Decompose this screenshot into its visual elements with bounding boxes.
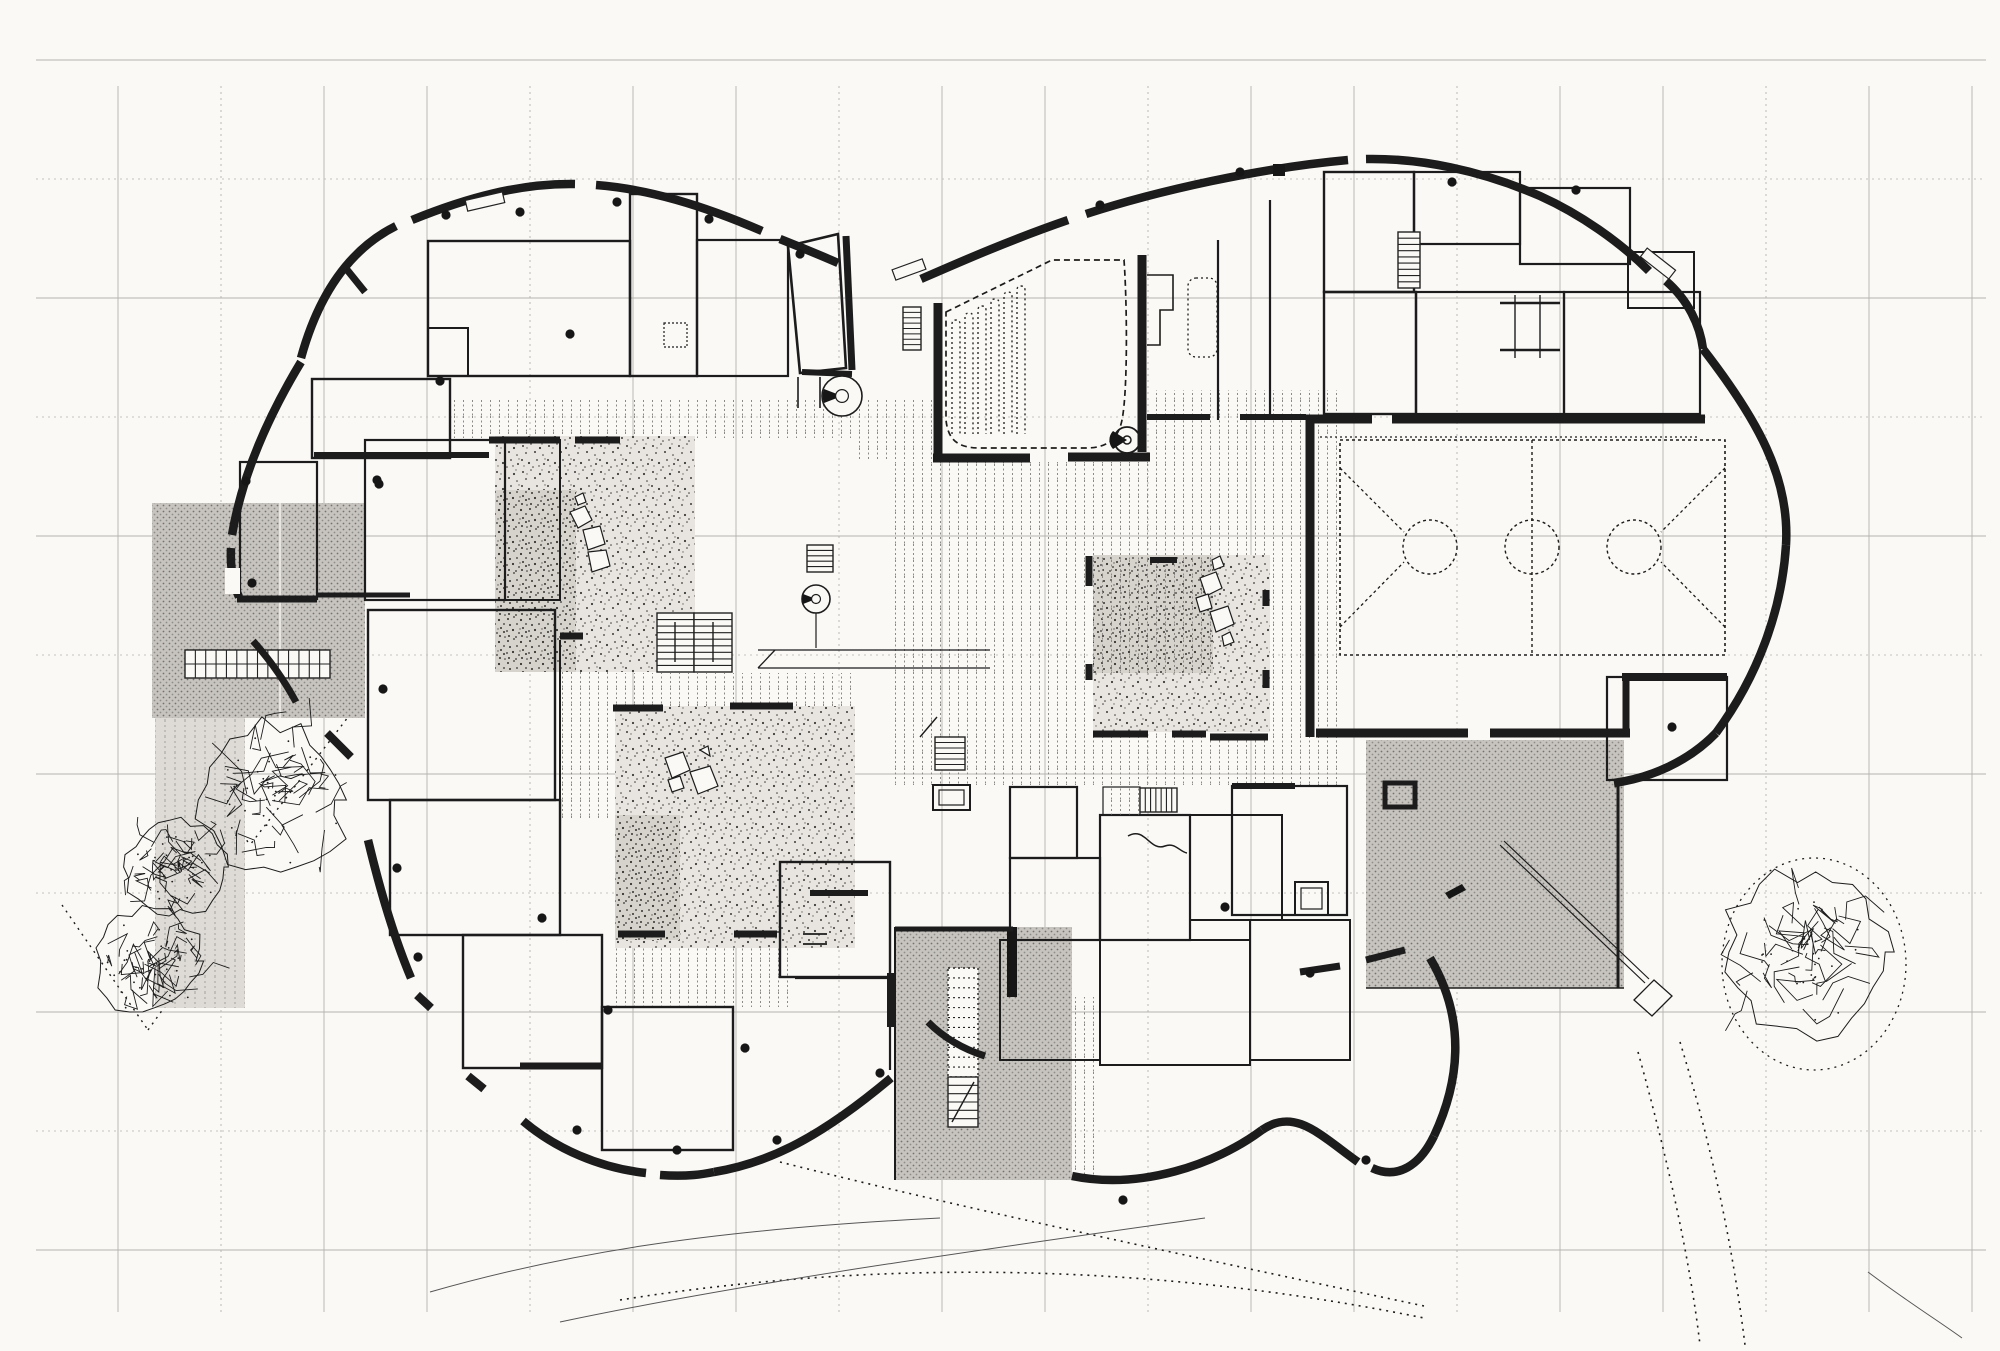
tree-dot — [1802, 982, 1804, 984]
column-dot — [378, 684, 387, 693]
tree-dot — [166, 836, 168, 838]
tree-dot — [107, 962, 109, 964]
tree-dot — [1818, 958, 1820, 960]
stair-outline — [948, 968, 978, 1077]
column-dot — [565, 329, 574, 338]
tree-dot — [244, 810, 246, 812]
tree-dot — [158, 898, 160, 900]
stair-run — [903, 307, 921, 350]
stair-run — [185, 650, 330, 678]
tree-dot — [274, 800, 276, 802]
tree-dot — [289, 862, 291, 864]
tree-dot — [192, 855, 194, 857]
tree-dot — [186, 862, 188, 864]
tree-dot — [175, 836, 177, 838]
tree-dot — [175, 869, 177, 871]
drawing-sheet — [0, 0, 2000, 1351]
tree-dot — [133, 981, 135, 983]
tree-dot — [263, 815, 265, 817]
column-dot — [603, 1005, 612, 1014]
tree-dot — [168, 947, 170, 949]
column-dot — [875, 1068, 884, 1077]
tree-dot — [1837, 1012, 1839, 1014]
stair-outline — [807, 545, 833, 572]
tree-dot — [176, 970, 178, 972]
column-dot — [392, 863, 401, 872]
tree-dot — [270, 811, 272, 813]
spiral-hub — [812, 595, 821, 604]
stair-run-dotted — [948, 968, 978, 1077]
column-dot — [612, 197, 621, 206]
tree-dot — [158, 929, 160, 931]
tree-dot — [1807, 943, 1809, 945]
tree-dot — [1814, 1019, 1816, 1021]
tree-dot — [335, 823, 337, 825]
tree-dot — [262, 778, 264, 780]
deck-stripes — [610, 940, 790, 1007]
column-dot — [435, 376, 444, 385]
tree-dot — [1855, 949, 1857, 951]
column-dot — [1095, 200, 1104, 209]
tree-dot — [288, 740, 290, 742]
tree-dot — [1815, 940, 1817, 942]
tree-dot — [137, 853, 139, 855]
tree-dot — [268, 787, 270, 789]
tree-dot — [1786, 960, 1788, 962]
tree-dot — [162, 843, 164, 845]
tree-dot — [156, 963, 158, 965]
spiral-stair — [822, 376, 862, 416]
tree-dot — [178, 863, 180, 865]
tree-dot — [157, 891, 159, 893]
tree-dot — [123, 924, 125, 926]
tree-dot — [1813, 901, 1815, 903]
tree-dot — [237, 760, 239, 762]
deck-stripes — [890, 555, 1093, 732]
column-dot — [1361, 1155, 1370, 1164]
tree-dot — [1857, 929, 1859, 931]
tree-dot — [1814, 977, 1816, 979]
deck-stripes — [890, 462, 1345, 555]
column-dot — [1235, 167, 1244, 176]
courtyard-gravel-dense — [495, 490, 576, 672]
deck-stripes — [1150, 390, 1345, 462]
tree-dot — [229, 804, 231, 806]
tree-dot — [169, 995, 171, 997]
tree-dot — [231, 827, 233, 829]
tree-dot — [166, 854, 168, 856]
column-dot — [247, 578, 256, 587]
deck-stripes — [852, 408, 933, 460]
column-dot — [413, 952, 422, 961]
tree-dot — [1804, 938, 1806, 940]
column-dot — [1220, 902, 1229, 911]
column-dot — [795, 249, 804, 258]
wall-chunk — [802, 372, 852, 374]
tree-dot — [1761, 954, 1763, 956]
stair-run — [935, 737, 965, 770]
tree-dot — [266, 824, 268, 826]
column-dot — [772, 1135, 781, 1144]
tree-dot — [192, 867, 194, 869]
tree-dot — [254, 737, 256, 739]
column-dot — [1447, 177, 1456, 186]
tree-dot — [191, 938, 193, 940]
tree-dot — [1761, 961, 1763, 963]
column-dot — [1118, 1195, 1127, 1204]
column-dot — [1305, 968, 1314, 977]
tree-dot — [1814, 964, 1816, 966]
tree-dot — [188, 857, 190, 859]
tree-dot — [268, 761, 270, 763]
tree-dot — [1763, 919, 1765, 921]
tree-dot — [163, 875, 165, 877]
floor-plan-canvas — [0, 0, 2000, 1351]
tree-dot — [186, 897, 188, 899]
tree-dot — [227, 769, 229, 771]
courtyard-gravel-dense — [615, 815, 680, 940]
tree-dot — [209, 855, 211, 857]
wall-bar — [1007, 927, 1017, 997]
tree-dot — [1810, 974, 1812, 976]
tree-dot — [175, 867, 177, 869]
tree-dot — [1812, 978, 1814, 980]
deck-stripes — [1072, 997, 1100, 1180]
column-dot — [1571, 185, 1580, 194]
tree-dot — [166, 968, 168, 970]
tree-dot — [124, 959, 126, 961]
column-dot — [704, 214, 713, 223]
tree-dot — [266, 799, 268, 801]
tree-dot — [267, 782, 269, 784]
tree-dot — [275, 791, 277, 793]
tree-dot — [119, 971, 121, 973]
tree-dot — [210, 892, 212, 894]
tree-dot — [1792, 950, 1794, 952]
tree-dot — [274, 795, 276, 797]
column-dot — [372, 475, 381, 484]
stair-run — [807, 545, 833, 572]
tree-dot — [126, 959, 128, 961]
tree-dot — [141, 968, 143, 970]
stair-run — [1398, 232, 1420, 288]
column-square — [1273, 164, 1285, 176]
tree-dot — [187, 997, 189, 999]
tree-dot — [257, 771, 259, 773]
tree-dot — [170, 869, 172, 871]
tree-dot — [184, 841, 186, 843]
tree-dot — [192, 873, 194, 875]
tree-dot — [1831, 965, 1833, 967]
spiral-hub — [836, 390, 849, 403]
tree-dot — [148, 959, 150, 961]
tree-dot — [135, 967, 137, 969]
tree-dot — [227, 800, 229, 802]
column-dot — [241, 476, 250, 485]
tree-dot — [171, 881, 173, 883]
column-dot — [572, 1125, 581, 1134]
terrace-hatched-west — [152, 503, 365, 718]
tree-dot — [177, 957, 179, 959]
tree-dot — [160, 945, 162, 947]
tree-dot — [125, 1007, 127, 1009]
tree-dot — [1796, 983, 1798, 985]
tree-dot — [335, 774, 337, 776]
tree-dot — [178, 869, 180, 871]
tree-dot — [309, 756, 311, 758]
vestibule-stripes — [1103, 787, 1140, 815]
tree-dot — [246, 787, 248, 789]
outer-wall-s — [660, 1172, 714, 1176]
tree-dot — [153, 860, 155, 862]
column-dot — [1667, 722, 1676, 731]
tree-dot — [1813, 953, 1815, 955]
column-dot — [441, 210, 450, 219]
courtyard-stripe-overlay — [1093, 555, 1213, 673]
column-dot — [515, 207, 524, 216]
column-dot — [672, 1145, 681, 1154]
tree-dot — [154, 857, 156, 859]
tree-dot — [139, 987, 141, 989]
stair-outline — [1398, 232, 1420, 288]
tree-dot — [113, 974, 115, 976]
tree-dot — [233, 786, 235, 788]
tree-dot — [1770, 953, 1772, 955]
column-dot — [537, 913, 546, 922]
tree-dot — [126, 950, 128, 952]
tree-dot — [120, 991, 122, 993]
tree-dot — [155, 974, 157, 976]
tree-dot — [201, 862, 203, 864]
column-dot — [740, 1043, 749, 1052]
stair-run — [1140, 788, 1177, 812]
door-gap — [225, 568, 240, 594]
tree-dot — [1797, 908, 1799, 910]
